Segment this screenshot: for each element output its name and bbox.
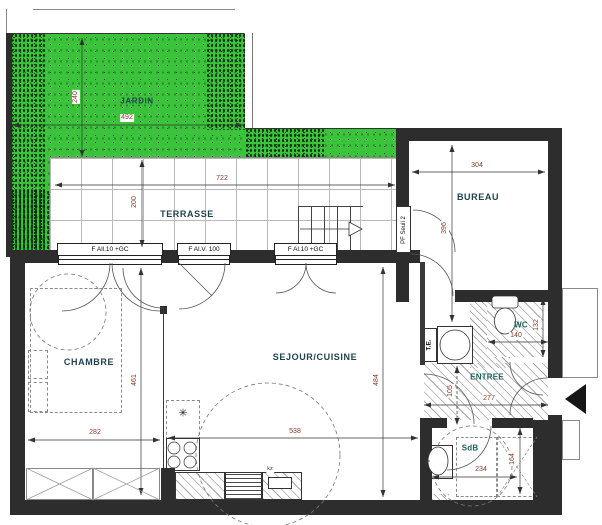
bureau-top-wall	[396, 128, 562, 141]
dim-terrasse-height: 200	[131, 195, 139, 209]
dim-wc-width: 140	[509, 332, 523, 340]
dim-chambre-height: 461	[131, 373, 139, 387]
bottom-wall	[10, 500, 562, 515]
vegetation-texture	[245, 128, 325, 157]
closet	[26, 468, 93, 500]
technical-closet-label: T.E.	[426, 339, 433, 350]
jardin-fence	[244, 33, 253, 128]
bureau-left-wall	[396, 248, 409, 302]
dim-sdb-width: 234	[474, 466, 488, 474]
dim-wc-height: 132	[533, 318, 541, 332]
dim-chambre-width: 282	[88, 429, 102, 437]
oven-box	[225, 472, 262, 500]
chambre-window-tag: F All.10 +GC	[57, 243, 163, 256]
sejour-door-window-tag: F Al.10 +GC	[274, 243, 337, 256]
dim-sdb-height: 164	[509, 452, 517, 466]
dim-jardin-width: 492	[120, 114, 134, 122]
property-boundary-left	[6, 9, 7, 33]
room-label-chambre: CHAMBRE	[64, 357, 114, 367]
bureau-terrace-door-tag: PF Seuil 2	[401, 216, 407, 244]
dim-entree-width: 277	[482, 395, 496, 403]
right-wall	[548, 128, 562, 378]
kitchen-sink-basin	[268, 477, 292, 489]
closet	[93, 468, 160, 500]
sejour-window-tag: F Al.V. 100	[177, 243, 231, 256]
snowflake-icon: ✳	[178, 407, 187, 420]
dim-sejour-height: 484	[373, 373, 381, 387]
dim-bureau-height: 396	[441, 221, 449, 235]
sejour-entree-wall	[420, 262, 425, 365]
kitchen-appliance-hatch	[175, 472, 225, 500]
vegetation-texture	[206, 33, 245, 130]
kitchen-wall-stub	[161, 468, 175, 500]
facade-wall	[230, 250, 275, 263]
bureau-bottom-wall	[455, 290, 562, 302]
dim-sejour-width: 538	[288, 428, 302, 436]
nightstand	[28, 350, 48, 379]
dim-entree-height: 105	[447, 384, 455, 398]
bureau-left-wall	[396, 128, 409, 208]
water-heater-box	[437, 326, 473, 364]
sdb-top-wall	[420, 418, 447, 428]
jardin-left-wall	[6, 33, 12, 257]
shower-box	[497, 437, 537, 497]
room-label-sejour-cuisine: SEJOUR/CUISINE	[273, 352, 357, 362]
exterior-step	[562, 420, 580, 460]
floor-plan: F All.10 +GC F Al.V. 100 F Al.10 +GC PF …	[0, 0, 602, 525]
sdb-right-wall	[533, 420, 548, 515]
exterior-landing	[562, 288, 598, 378]
property-boundary-top	[33, 9, 235, 10]
dim-terrasse-width: 722	[215, 175, 229, 183]
room-label-wc: WC	[514, 321, 528, 330]
sdb-left-wall	[420, 425, 432, 500]
cooktop-box	[166, 438, 200, 471]
sdb-top-wall	[492, 418, 533, 428]
room-label-entree: ENTREE	[470, 373, 504, 382]
room-label-terrasse: TERRASSE	[160, 209, 214, 219]
right-wall	[548, 415, 562, 515]
dim-jardin-height: 240	[72, 90, 80, 104]
left-wall	[10, 255, 25, 515]
dim-bureau-width: 304	[470, 162, 484, 170]
vegetation-texture	[10, 190, 50, 257]
room-label-jardin: JARDIN	[120, 97, 153, 106]
entry-direction-arrow	[565, 384, 586, 414]
room-label-bureau: BUREAU	[457, 192, 499, 202]
chambre-partition-line	[163, 308, 164, 468]
room-label-sdb: SdB	[462, 444, 479, 453]
nightstand	[28, 382, 48, 412]
kitchen-sink-tag: kz	[266, 465, 274, 473]
